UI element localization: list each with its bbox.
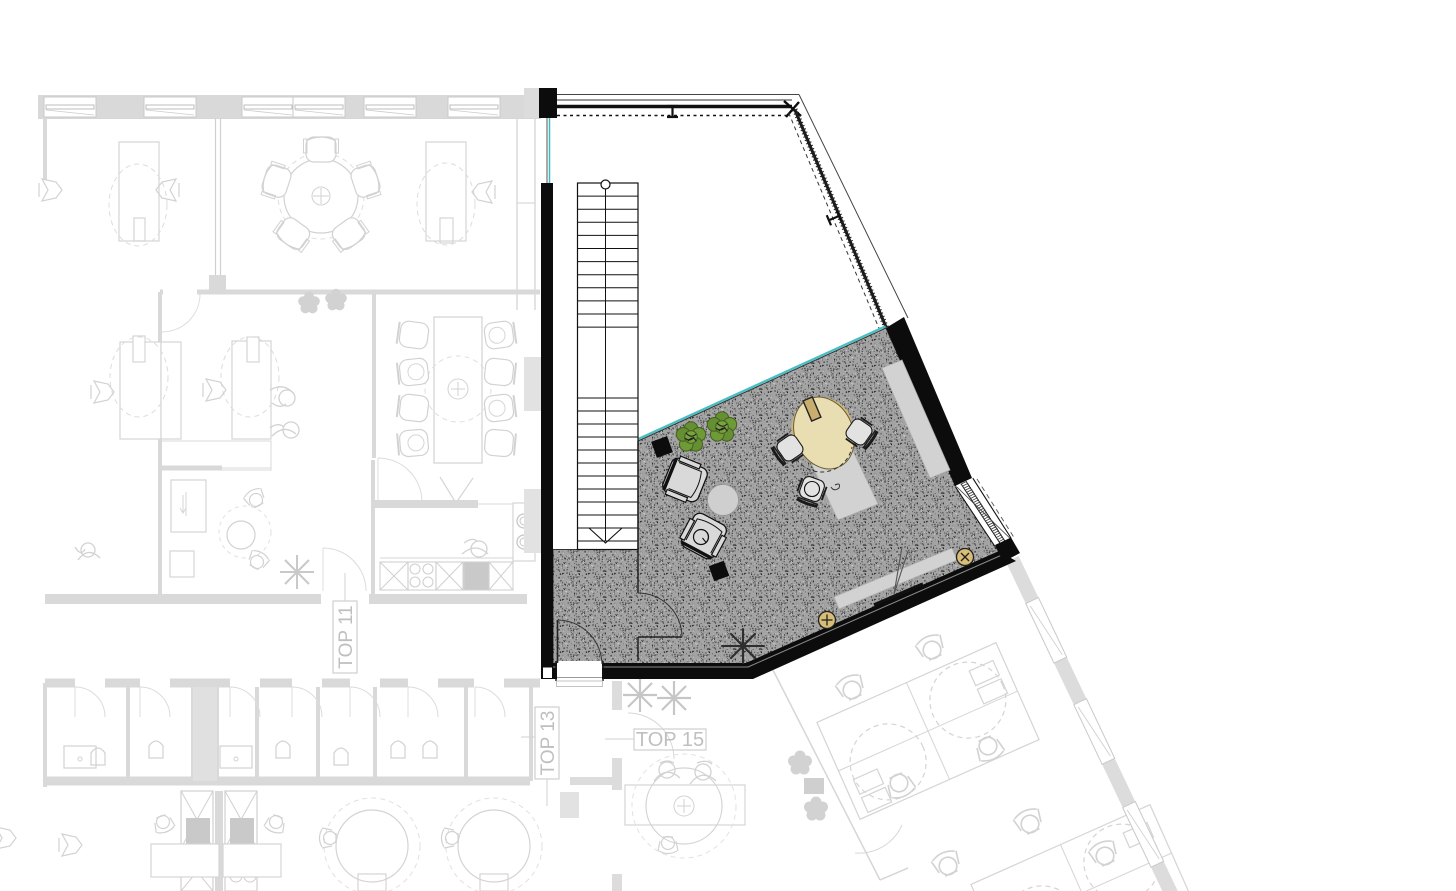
svg-text:TOP 13: TOP 13 <box>538 711 559 776</box>
svg-text:TOP 15: TOP 15 <box>636 729 704 751</box>
svg-text:TOP 11: TOP 11 <box>336 605 357 668</box>
